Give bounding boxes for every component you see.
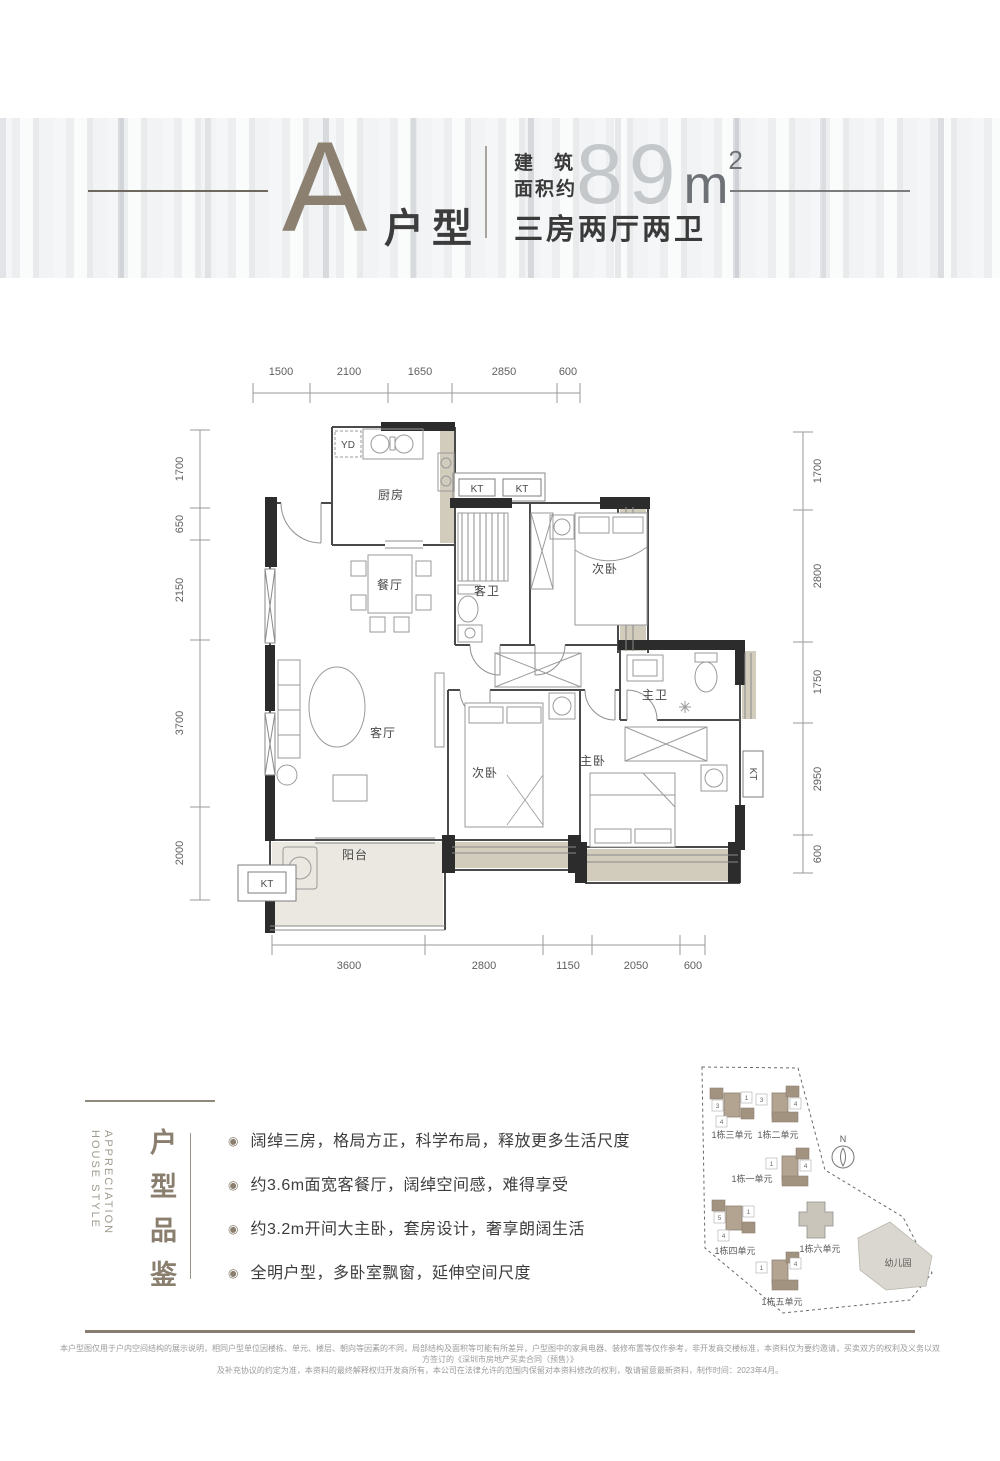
dim-left-3: 3700 (174, 711, 186, 735)
unit-number: 4 (722, 1233, 726, 1240)
room-label-living: 客厅 (370, 725, 396, 740)
dim-bottom-2: 1150 (556, 960, 580, 972)
building-cluster-2: 3 4 1栋二单元 (756, 1086, 801, 1140)
dim-right-2: 1750 (812, 670, 824, 694)
feature-item: ◉ 约3.2m开间大主卧，套房设计，奢享朗阔生活 (228, 1220, 658, 1239)
room-label-dining: 餐厅 (377, 577, 403, 592)
features-list: ◉ 阔绰三房，格局方正，科学布局，释放更多生活尺度 ◉ 约3.6m面宽客餐厅，阔… (228, 1132, 658, 1308)
dimension-chain-left (190, 430, 210, 900)
bullet-icon: ◉ (228, 1176, 238, 1195)
bullet-icon: ◉ (228, 1220, 238, 1239)
building-cluster-5: 1 4 1栋五单元 (756, 1252, 803, 1307)
feature-text: 约3.6m面宽客餐厅，阔绰空间感，难得享受 (250, 1176, 568, 1195)
header-banner: A 户型 建筑 面积约 89 m 2 三房两厅两卫 (0, 118, 1000, 278)
features-title-en-line2: APPRECIATION (102, 1130, 114, 1235)
dim-bottom-0: 3600 (337, 960, 361, 972)
building-cluster-1: 1 4 1栋一单元 (731, 1148, 811, 1186)
dim-right-1: 2800 (812, 564, 824, 588)
unit-number: 1 (745, 1095, 749, 1102)
unit-number: 4 (804, 1163, 808, 1170)
dim-right-0: 1700 (812, 459, 824, 483)
site-plan: 3 1 4 1栋三单元 3 4 1栋二单元 1 4 1栋一单元 (690, 1060, 990, 1330)
dimension-labels-left: 1700 650 2150 3700 2000 (174, 457, 186, 865)
unit-number: 5 (718, 1215, 722, 1222)
dimension-labels-bottom: 3600 2800 1150 2050 600 (337, 960, 702, 972)
dimension-labels-top: 1500 2100 1650 2850 600 (269, 366, 577, 378)
dim-left-2: 2150 (174, 578, 186, 602)
kindergarten-label: 幼儿园 (884, 1257, 911, 1268)
page: A 户型 建筑 面积约 89 m 2 三房两厅两卫 1500 2100 (0, 0, 1000, 1461)
feature-text: 全明户型，多卧室飘窗，延伸空间尺度 (250, 1264, 531, 1283)
room-label-bedroom2: 次卧 (592, 562, 618, 576)
features-title-chinese: 户型品鉴 (142, 1128, 181, 1304)
area-exponent: 2 (728, 145, 742, 176)
area-number: 89 (576, 132, 681, 216)
building-cluster-3: 3 1 4 1栋三单元 (710, 1088, 754, 1140)
compass-icon: N (832, 1134, 854, 1168)
header-right-line (730, 190, 910, 192)
disclaimer-line2: 及补充协议的约定为准，本资料的最终解释权归开发商所有，本公司在法律允许的范围内保… (60, 1365, 940, 1376)
room-label-master-bath: 主卫 (642, 688, 668, 702)
room-label-bedroom3: 次卧 (472, 766, 498, 780)
site-unit-label: 1栋二单元 (757, 1129, 798, 1140)
area-unit: m (683, 158, 728, 212)
kt-box-label-1: KT (471, 484, 484, 495)
compass-n-label: N (840, 1134, 847, 1144)
dim-top-4: 600 (559, 366, 577, 378)
dimension-chain-bottom (272, 935, 705, 955)
dimension-chain-right (793, 432, 813, 873)
disclaimer-line1: 本户型图仅用于户内空间结构的展示说明，相同户型单位因楼栋、单元、楼层、朝向等因素… (60, 1343, 940, 1365)
area-caption-line2: 面积约 (514, 174, 577, 201)
dim-right-4: 600 (812, 845, 824, 863)
disclaimer: 本户型图仅用于户内空间结构的展示说明，相同户型单位因楼栋、单元、楼层、朝向等因素… (60, 1343, 940, 1376)
room-label-yd: YD (341, 440, 355, 451)
site-unit-label: 1栋三单元 (711, 1129, 752, 1140)
dim-left-4: 2000 (174, 841, 186, 865)
dim-bottom-1: 2800 (472, 960, 496, 972)
unit-type-label: 户型 (384, 196, 480, 254)
site-unit-label: 1栋六单元 (799, 1243, 840, 1254)
unit-number: 4 (794, 1101, 798, 1108)
kt-box-label-bottom: KT (261, 879, 274, 890)
features-title-en-line1: HOUSE STYLE (89, 1130, 101, 1229)
dimension-chain-top (253, 383, 580, 403)
unit-number: 4 (794, 1261, 798, 1268)
floor-plan: 1500 2100 1650 2850 600 1700 650 2150 37… (165, 355, 865, 985)
unit-number: 4 (720, 1119, 724, 1126)
feature-item: ◉ 约3.6m面宽客餐厅，阔绰空间感，难得享受 (228, 1176, 658, 1195)
room-label-guest-bath: 客卫 (474, 583, 500, 598)
site-unit-label: 1栋五单元 (761, 1296, 802, 1307)
unit-number: 3 (716, 1103, 720, 1110)
dim-left-0: 1700 (174, 457, 186, 481)
kt-box-label-right: KT (747, 768, 758, 781)
site-unit-label: 1栋一单元 (731, 1173, 772, 1184)
dim-left-1: 650 (174, 515, 186, 533)
dim-bottom-4: 600 (684, 960, 702, 972)
bullet-icon: ◉ (228, 1264, 238, 1283)
building-six: 1栋六单元 (799, 1202, 841, 1254)
unit-number: 3 (760, 1097, 764, 1104)
dim-top-1: 2100 (337, 366, 361, 378)
features-top-line (85, 1100, 215, 1102)
footer-divider-bar (85, 1330, 915, 1333)
building-cluster-4: 5 1 4 1栋四单元 (712, 1200, 756, 1256)
room-label-kitchen: 厨房 (378, 487, 404, 502)
room-label-master-bedroom: 主卧 (580, 754, 606, 768)
features-title-english: HOUSE STYLE APPRECIATION (88, 1130, 114, 1235)
layout-spec: 三房两厅两卫 (514, 206, 706, 248)
dimension-labels-right: 1700 2800 1750 2950 600 (812, 459, 824, 863)
room-label-balcony: 阳台 (342, 847, 368, 862)
dim-top-0: 1500 (269, 366, 293, 378)
feature-text: 约3.2m开间大主卧，套房设计，奢享朗阔生活 (250, 1220, 585, 1239)
unit-number: 1 (760, 1265, 764, 1272)
area-value: 89 m 2 (576, 132, 743, 216)
site-unit-label: 1栋四单元 (714, 1245, 755, 1256)
dim-top-2: 1650 (408, 366, 432, 378)
unit-number: 1 (747, 1209, 751, 1216)
feature-item: ◉ 全明户型，多卧室飘窗，延伸空间尺度 (228, 1264, 658, 1283)
features-divider (190, 1133, 191, 1279)
feature-item: ◉ 阔绰三房，格局方正，科学布局，释放更多生活尺度 (228, 1132, 658, 1151)
unit-type-letter: A (282, 138, 367, 238)
header-left-line (88, 190, 268, 192)
header-vertical-divider (485, 146, 487, 238)
dim-right-3: 2950 (812, 767, 824, 791)
dim-top-3: 2850 (492, 366, 516, 378)
feature-text: 阔绰三房，格局方正，科学布局，释放更多生活尺度 (250, 1132, 630, 1151)
kt-box-label-2: KT (516, 484, 529, 495)
dim-bottom-3: 2050 (624, 960, 648, 972)
unit-number: 1 (770, 1161, 774, 1168)
bullet-icon: ◉ (228, 1132, 238, 1151)
kindergarten: 幼儿园 (858, 1222, 932, 1290)
